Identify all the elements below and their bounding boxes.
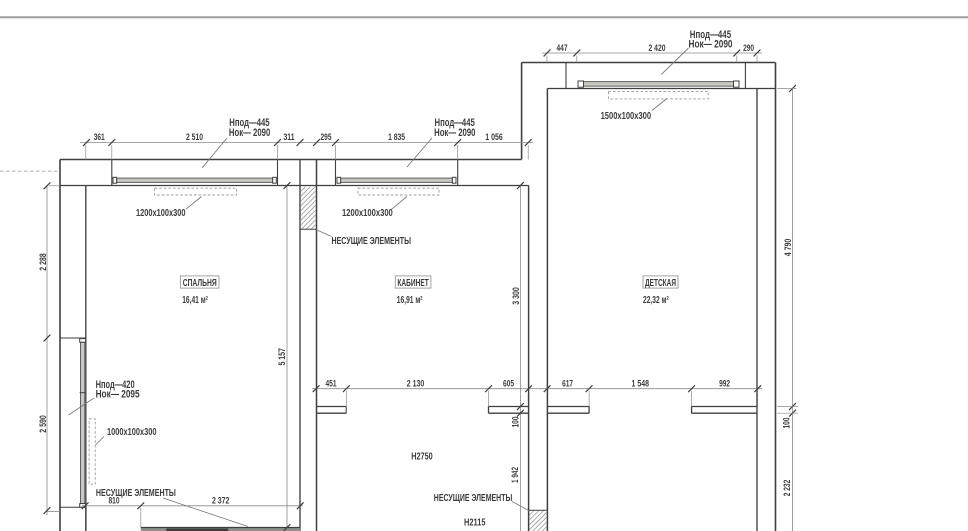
svg-text:Н2750: Н2750 — [411, 450, 433, 462]
svg-text:16,91 м²: 16,91 м² — [397, 295, 423, 306]
svg-text:1200x100x300: 1200x100x300 — [136, 208, 186, 219]
svg-text:22,32 м²: 22,32 м² — [643, 295, 669, 306]
svg-text:Нок— 2095: Нок— 2095 — [96, 388, 140, 400]
svg-text:1000x100x300: 1000x100x300 — [107, 427, 157, 438]
svg-text:100: 100 — [511, 417, 521, 428]
svg-text:361: 361 — [94, 132, 105, 142]
svg-text:1500x100x300: 1500x100x300 — [601, 111, 652, 122]
svg-text:НЕСУЩИЕ ЭЛЕМЕНТЫ: НЕСУЩИЕ ЭЛЕМЕНТЫ — [96, 487, 176, 499]
svg-text:2 420: 2 420 — [649, 43, 666, 53]
svg-text:2 232: 2 232 — [782, 480, 792, 497]
svg-text:290: 290 — [743, 43, 754, 53]
svg-text:Нок— 2090: Нок— 2090 — [689, 38, 733, 50]
svg-text:311: 311 — [284, 132, 295, 142]
svg-text:1 835: 1 835 — [388, 132, 405, 142]
svg-text:2 130: 2 130 — [407, 378, 425, 388]
svg-text:2 372: 2 372 — [212, 495, 230, 505]
svg-text:Нок— 2090: Нок— 2090 — [229, 127, 270, 139]
svg-text:2 590: 2 590 — [38, 415, 48, 433]
svg-text:447: 447 — [557, 43, 568, 53]
svg-text:СПАЛЬНЯ: СПАЛЬНЯ — [183, 278, 217, 289]
svg-text:605: 605 — [503, 378, 514, 388]
svg-text:295: 295 — [321, 132, 332, 142]
svg-text:КАБИНЕТ: КАБИНЕТ — [397, 278, 429, 289]
svg-text:16,41 м²: 16,41 м² — [182, 295, 208, 306]
svg-text:Нок— 2090: Нок— 2090 — [434, 127, 475, 139]
svg-text:617: 617 — [562, 378, 573, 388]
svg-text:1200x100x300: 1200x100x300 — [342, 208, 393, 219]
svg-text:1 548: 1 548 — [632, 378, 650, 388]
svg-text:1 056: 1 056 — [485, 132, 503, 142]
svg-text:100: 100 — [782, 418, 792, 429]
svg-text:ДЕТСКАЯ: ДЕТСКАЯ — [645, 278, 676, 289]
svg-text:НЕСУЩИЕ ЭЛЕМЕНТЫ: НЕСУЩИЕ ЭЛЕМЕНТЫ — [332, 235, 412, 247]
svg-text:5 157: 5 157 — [277, 348, 287, 366]
svg-text:2 288: 2 288 — [38, 253, 48, 271]
svg-text:4 790: 4 790 — [783, 239, 793, 257]
svg-text:3 300: 3 300 — [511, 287, 521, 305]
svg-text:НЕСУЩИЕ ЭЛЕМЕНТЫ: НЕСУЩИЕ ЭЛЕМЕНТЫ — [434, 492, 513, 504]
svg-text:992: 992 — [719, 378, 730, 388]
svg-text:451: 451 — [326, 378, 337, 388]
svg-text:2 510: 2 510 — [186, 132, 203, 142]
svg-text:1 942: 1 942 — [510, 467, 520, 483]
svg-text:Н2115: Н2115 — [464, 517, 486, 529]
